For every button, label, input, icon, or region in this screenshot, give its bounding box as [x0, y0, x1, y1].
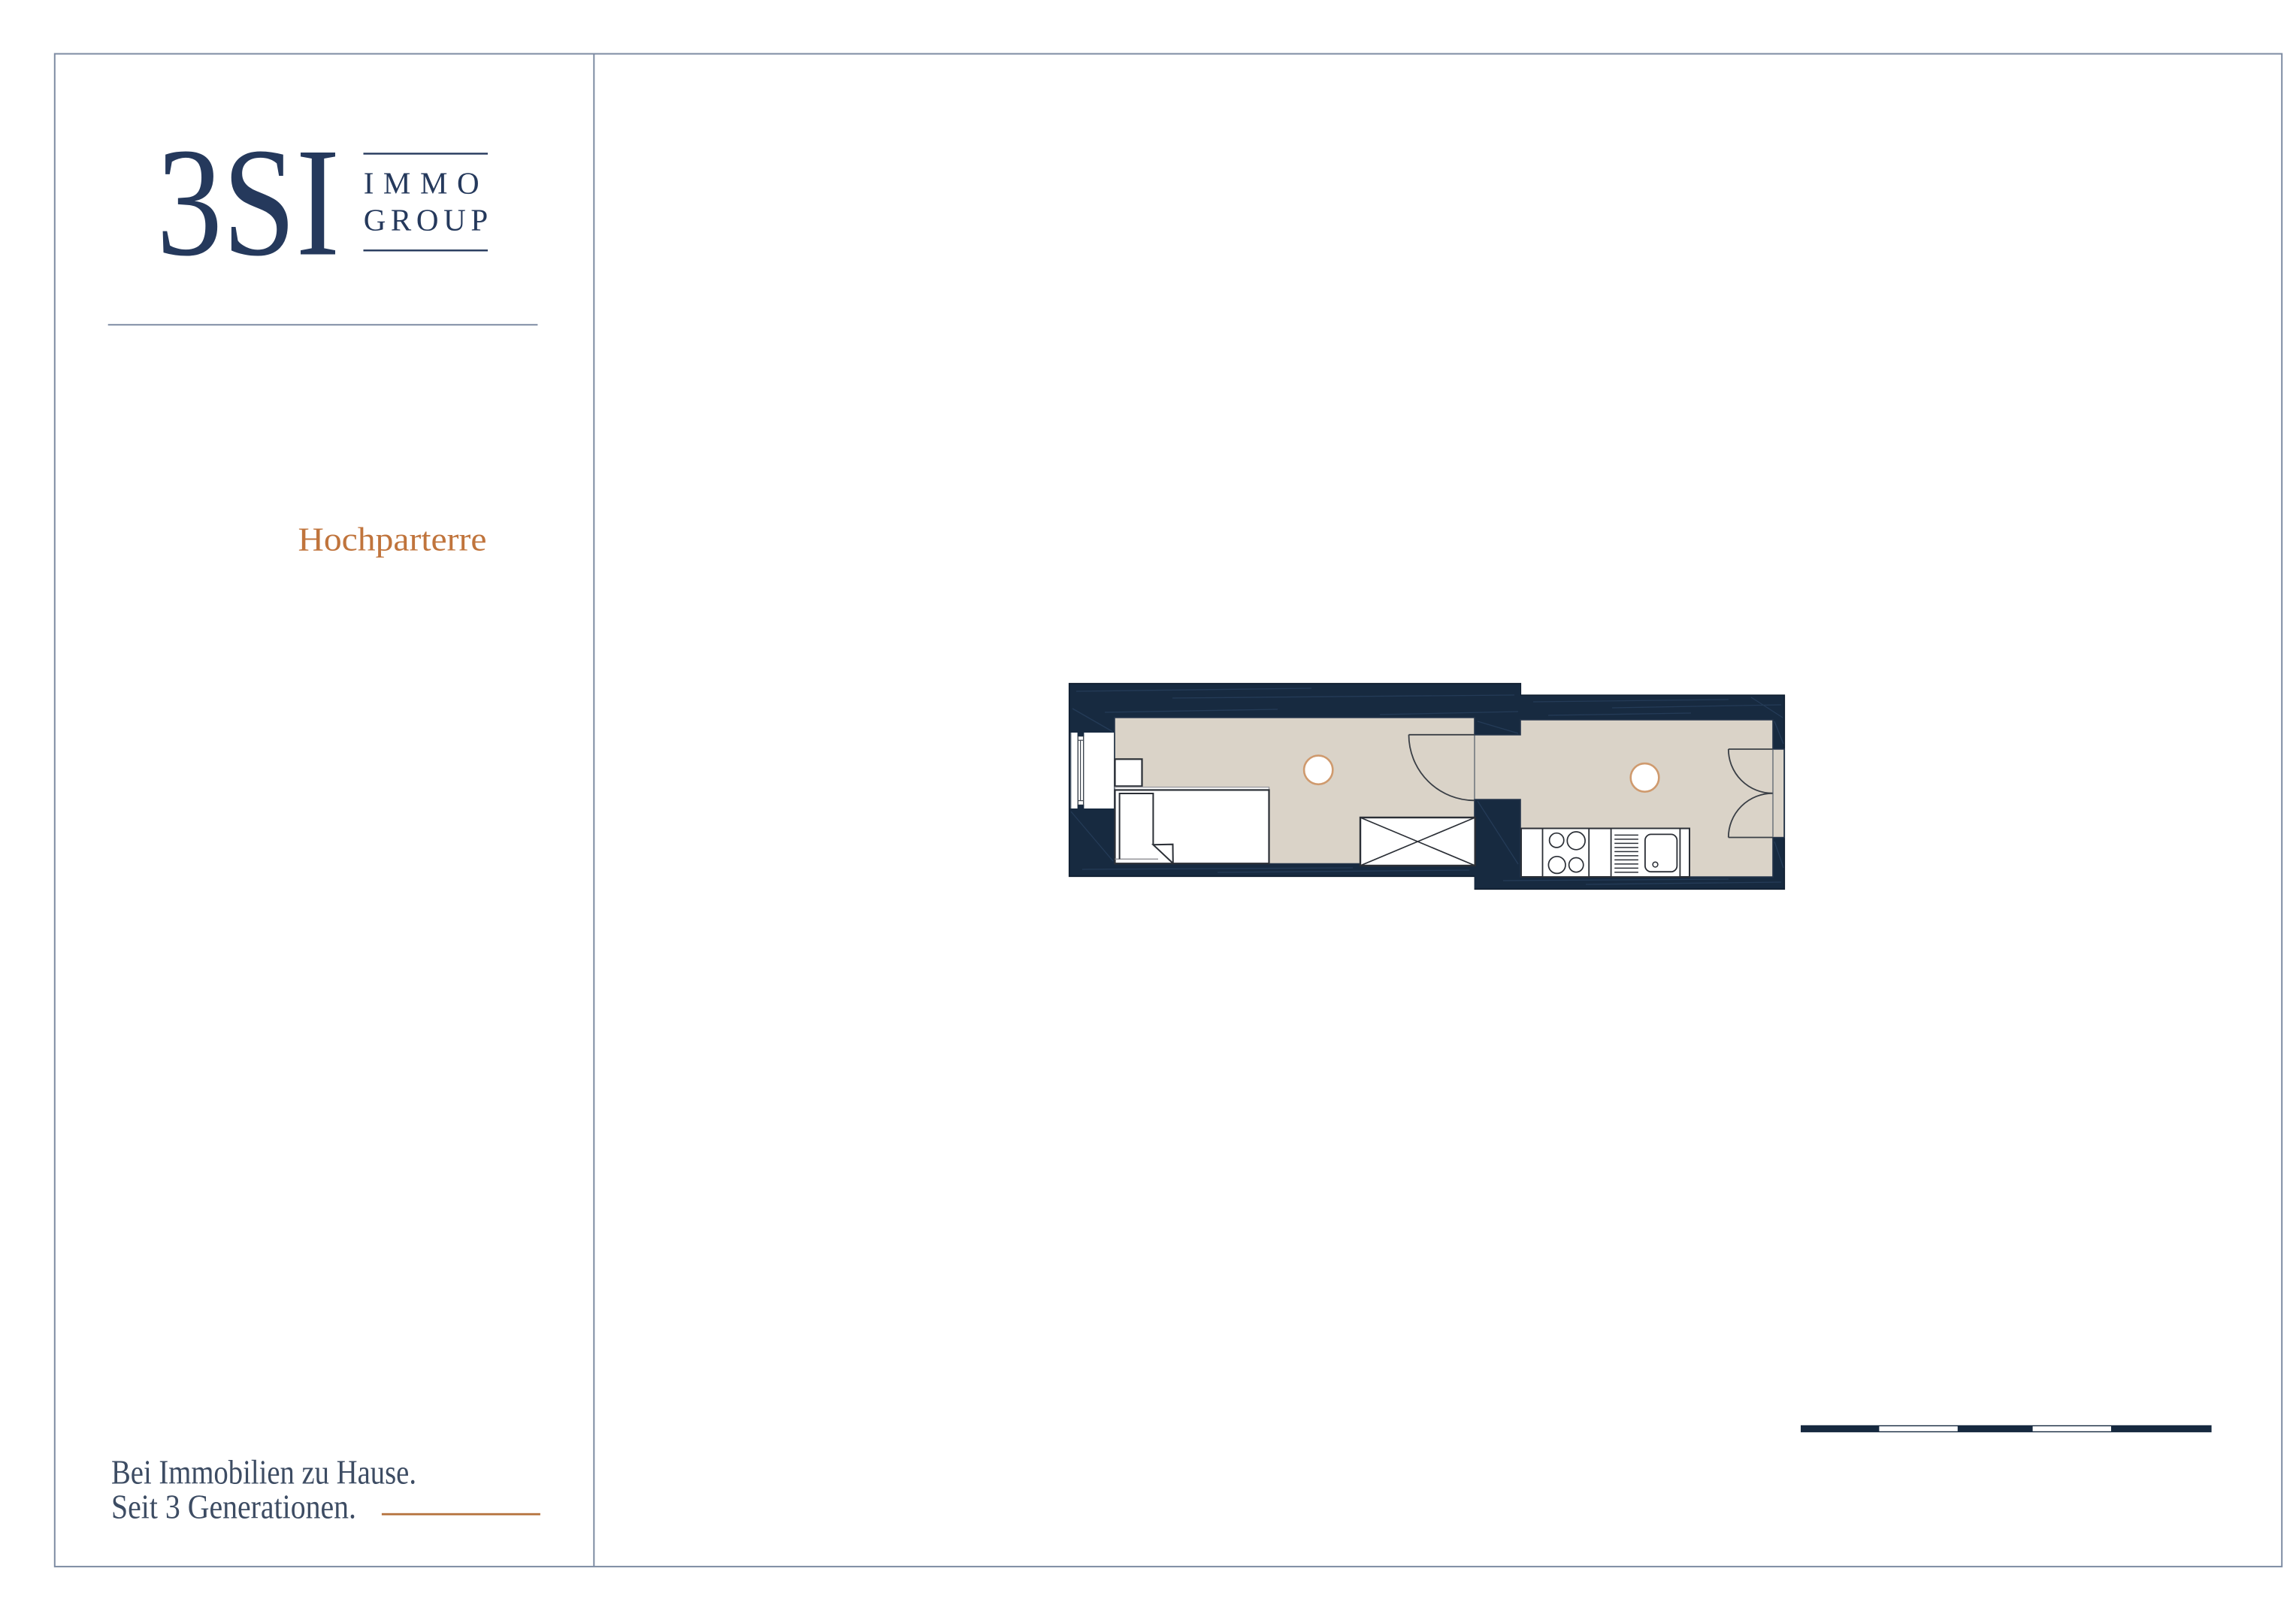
svg-text:Hochparterre: Hochparterre	[298, 521, 487, 558]
svg-text:Bei Immobilien zu Hause.: Bei Immobilien zu Hause.	[111, 1454, 416, 1492]
svg-text:3SI: 3SI	[156, 116, 340, 289]
svg-text:Seit 3 Generationen.: Seit 3 Generationen.	[111, 1489, 356, 1526]
